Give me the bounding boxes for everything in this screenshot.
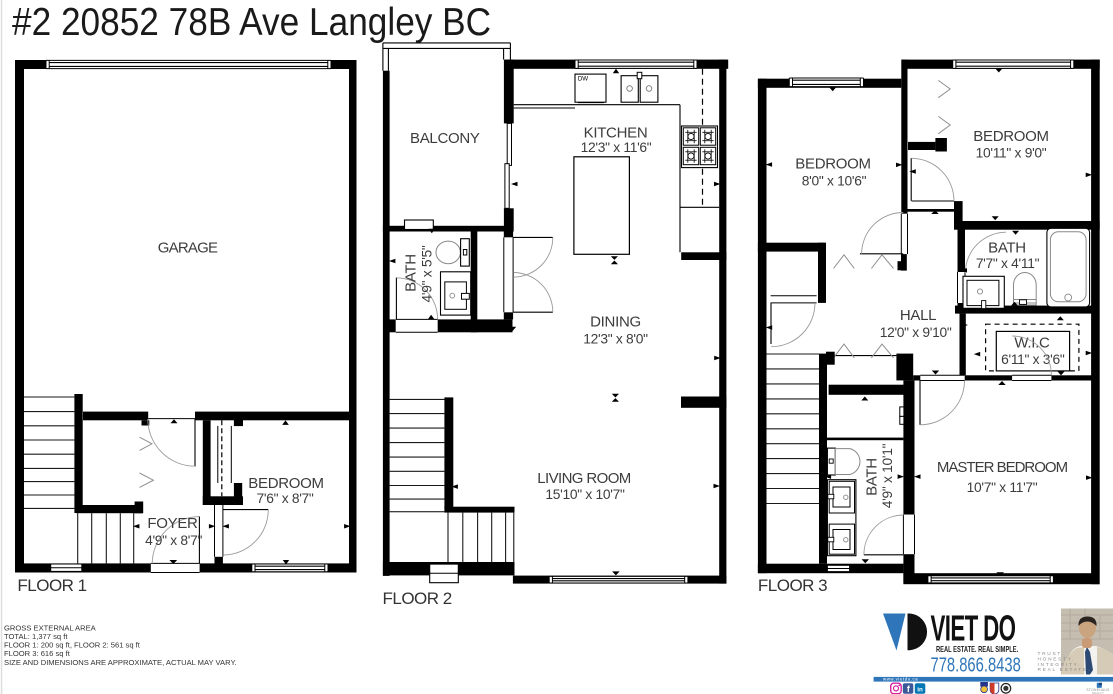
svg-text:FLOOR 3: FLOOR 3 bbox=[758, 576, 827, 595]
svg-text:12'3" x 8'0": 12'3" x 8'0" bbox=[583, 332, 648, 347]
svg-text:HONESTY.: HONESTY. bbox=[1038, 656, 1076, 662]
svg-text:4'9" x 5'5": 4'9" x 5'5" bbox=[420, 245, 435, 302]
svg-text:BATH: BATH bbox=[988, 240, 1026, 257]
svg-text:REAL ESTATE.: REAL ESTATE. bbox=[1038, 667, 1091, 673]
svg-text:7'6" x 8'7": 7'6" x 8'7" bbox=[256, 491, 313, 506]
svg-text:SIZE AND DIMENSIONS ARE APPROX: SIZE AND DIMENSIONS ARE APPROXIMATE, ACT… bbox=[4, 658, 237, 667]
svg-text:BEDROOM: BEDROOM bbox=[795, 156, 870, 173]
svg-text:7'7" x 4'11": 7'7" x 4'11" bbox=[976, 256, 1040, 271]
svg-text:LIVING ROOM: LIVING ROOM bbox=[537, 470, 631, 487]
svg-text:#2 20852 78B Ave Langley BC: #2 20852 78B Ave Langley BC bbox=[12, 1, 491, 44]
svg-text:DINING: DINING bbox=[590, 314, 641, 331]
svg-text:12'0" x 9'10": 12'0" x 9'10" bbox=[880, 325, 952, 340]
svg-text:in: in bbox=[917, 686, 923, 693]
svg-text:4'9" x 8'7": 4'9" x 8'7" bbox=[145, 533, 202, 548]
svg-text:GARAGE: GARAGE bbox=[158, 240, 218, 257]
svg-text:f: f bbox=[907, 684, 910, 694]
svg-text:FLOOR 3: 616 sq ft: FLOOR 3: 616 sq ft bbox=[4, 649, 71, 658]
svg-text:8'0" x 10'6": 8'0" x 10'6" bbox=[802, 174, 867, 189]
svg-text:4'9" x 10'1": 4'9" x 10'1" bbox=[880, 443, 895, 508]
svg-text:15'10" x 10'7": 15'10" x 10'7" bbox=[545, 487, 625, 502]
svg-text:BALCONY: BALCONY bbox=[410, 130, 480, 147]
svg-text:12'3" x 11'6": 12'3" x 11'6" bbox=[581, 140, 652, 155]
svg-text:FLOOR 1: FLOOR 1 bbox=[17, 576, 86, 595]
svg-text:BEDROOM: BEDROOM bbox=[973, 128, 1048, 145]
svg-text:KITCHEN: KITCHEN bbox=[584, 125, 648, 142]
svg-text:TRUST.: TRUST. bbox=[1038, 651, 1065, 657]
svg-text:BATH: BATH bbox=[403, 254, 420, 292]
svg-text:10'11" x 9'0": 10'11" x 9'0" bbox=[976, 146, 1047, 161]
svg-text:FLOOR 2: FLOOR 2 bbox=[383, 589, 452, 608]
svg-text:10'7" x 11'7": 10'7" x 11'7" bbox=[967, 480, 1038, 495]
svg-text:MASTER BEDROOM: MASTER BEDROOM bbox=[937, 459, 1068, 476]
svg-text:BATH: BATH bbox=[864, 458, 881, 496]
svg-text:FOYER: FOYER bbox=[147, 515, 198, 532]
svg-text:INTEGRITY.: INTEGRITY. bbox=[1038, 662, 1081, 668]
svg-text:BEDROOM: BEDROOM bbox=[248, 475, 323, 492]
svg-text:www.vietdo.ca: www.vietdo.ca bbox=[883, 677, 918, 682]
svg-text:DW: DW bbox=[578, 76, 588, 83]
svg-text:778.866.8438: 778.866.8438 bbox=[931, 653, 1021, 676]
svg-text:HALL: HALL bbox=[900, 307, 936, 324]
svg-text:TOTAL: 1,377 sq ft: TOTAL: 1,377 sq ft bbox=[4, 632, 68, 641]
svg-text:6'11" x 3'6": 6'11" x 3'6" bbox=[1001, 352, 1065, 367]
